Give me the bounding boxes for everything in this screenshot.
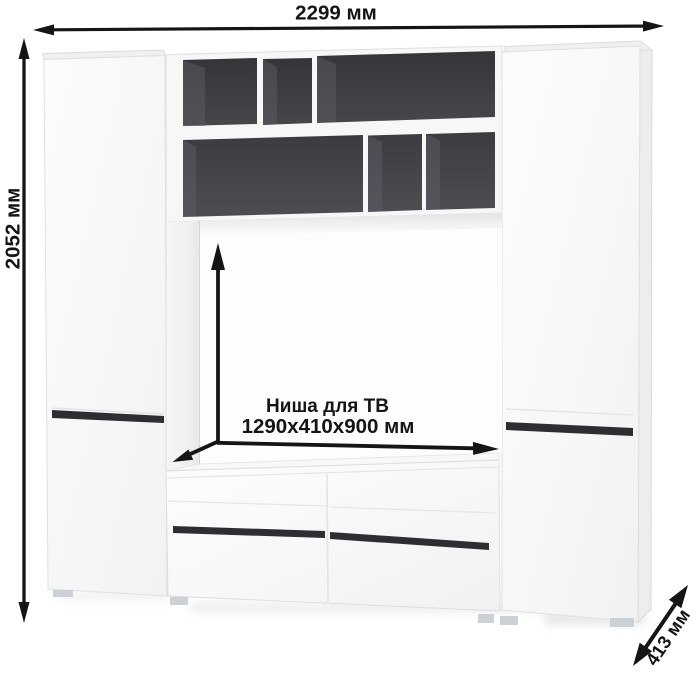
svg-text:2052 мм: 2052 мм: [2, 188, 25, 270]
svg-text:2299 мм: 2299 мм: [295, 2, 377, 25]
svg-text:Ниша для ТВ: Ниша для ТВ: [266, 396, 389, 417]
svg-text:1290x410x900 мм: 1290x410x900 мм: [242, 415, 415, 438]
